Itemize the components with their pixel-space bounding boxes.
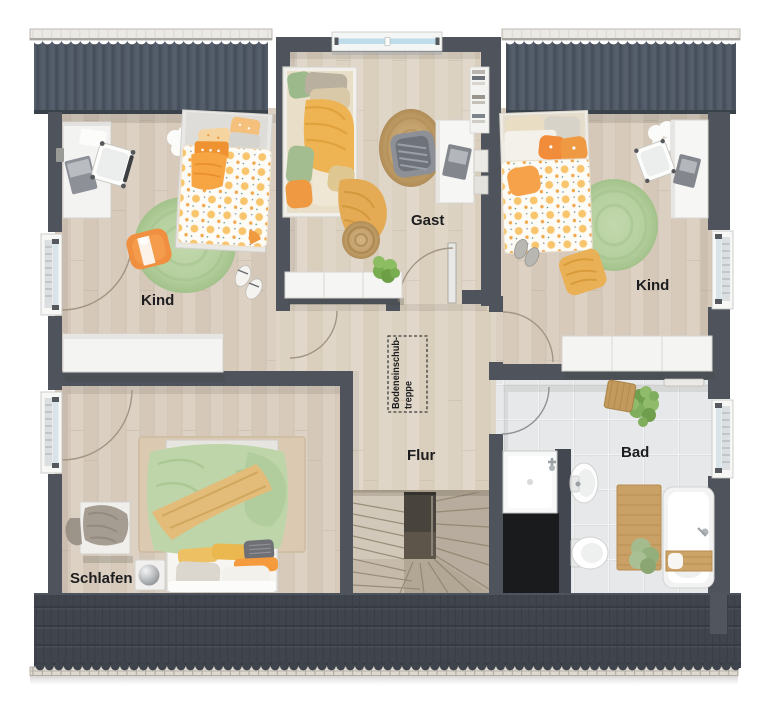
svg-text:Schlafen: Schlafen — [70, 570, 133, 587]
svg-text:Bodeneinschub-: Bodeneinschub- — [390, 337, 402, 409]
svg-text:Bad: Bad — [621, 444, 649, 461]
svg-text:Kind: Kind — [141, 292, 174, 309]
svg-text:Kind: Kind — [636, 277, 669, 294]
svg-text:treppe: treppe — [403, 381, 415, 409]
svg-text:Gast: Gast — [411, 212, 444, 229]
svg-text:Flur: Flur — [407, 447, 435, 464]
